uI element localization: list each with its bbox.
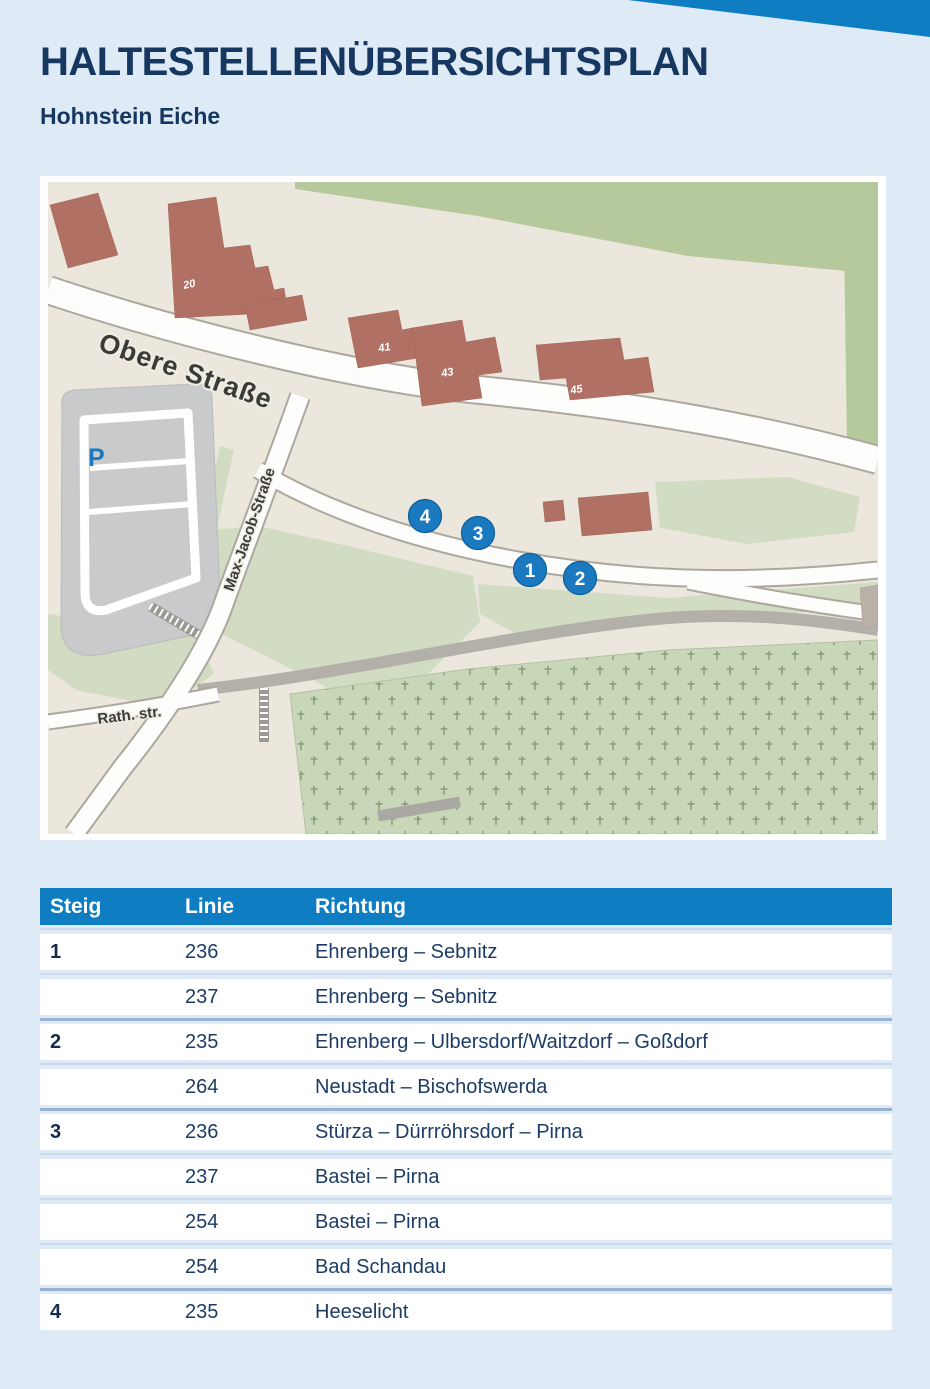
cell-richtung: Ehrenberg – Sebnitz: [315, 986, 892, 1009]
building-label: 41: [376, 341, 391, 355]
cell-linie: 237: [185, 986, 315, 1009]
cell-linie: 236: [185, 1121, 315, 1144]
cell-linie: 254: [185, 1211, 315, 1234]
cell-linie: 237: [185, 1166, 315, 1189]
map-parking-area: [61, 384, 220, 656]
stop-number: 3: [473, 524, 484, 545]
header-cell-linie: Linie: [185, 895, 315, 919]
table-row: 2 235 Ehrenberg – Ulbersdorf/Waitzdorf –…: [40, 1024, 892, 1060]
cell-linie: 254: [185, 1256, 315, 1279]
stop-number: 4: [420, 507, 431, 528]
header-cell-steig: Steig: [40, 895, 185, 919]
cell-richtung: Ehrenberg – Ulbersdorf/Waitzdorf – Goßdo…: [315, 1031, 892, 1054]
row-separator: [40, 1240, 892, 1249]
stop-marker-3: 3: [462, 517, 495, 550]
map-image: 20 41 43 45 Obere Straße Max-Jacob-Straß…: [48, 182, 878, 834]
table-row: 3 236 Stürza – Dürrröhrsdorf – Pirna: [40, 1114, 892, 1150]
table-row: 4 235 Heeselicht: [40, 1294, 892, 1330]
header-cell-richtung: Richtung: [315, 895, 892, 919]
departures-table: Steig Linie Richtung 1 236 Ehrenberg – S…: [40, 888, 892, 1330]
stop-number: 1: [525, 561, 536, 582]
cell-steig: 1: [40, 941, 185, 964]
table-row: 254 Bastei – Pirna: [40, 1204, 892, 1240]
table-row: 237 Bastei – Pirna: [40, 1159, 892, 1195]
stop-overview-map: 20 41 43 45 Obere Straße Max-Jacob-Straß…: [40, 176, 886, 840]
cell-steig: 3: [40, 1121, 185, 1144]
parking-label: P: [88, 444, 105, 472]
stop-number: 2: [575, 569, 586, 590]
table-row: 264 Neustadt – Bischofswerda: [40, 1069, 892, 1105]
cell-richtung: Neustadt – Bischofswerda: [315, 1076, 892, 1099]
stop-marker-2: 2: [564, 562, 597, 595]
cell-richtung: Ehrenberg – Sebnitz: [315, 941, 892, 964]
row-separator: [40, 1015, 892, 1024]
cell-linie: 236: [185, 941, 315, 964]
cell-richtung: Bad Schandau: [315, 1256, 892, 1279]
cell-richtung: Bastei – Pirna: [315, 1166, 892, 1189]
cell-steig: 2: [40, 1031, 185, 1054]
cell-richtung: Stürza – Dürrröhrsdorf – Pirna: [315, 1121, 892, 1144]
cell-linie: 264: [185, 1076, 315, 1099]
row-separator: [40, 1285, 892, 1294]
row-separator: [40, 1105, 892, 1114]
map-green-area: [844, 234, 878, 446]
table-row: 1 236 Ehrenberg – Sebnitz: [40, 934, 892, 970]
table-row: 237 Ehrenberg – Sebnitz: [40, 979, 892, 1015]
page-title: HALTESTELLENÜBERSICHTSPLAN: [40, 40, 708, 85]
cell-richtung: Heeselicht: [315, 1301, 892, 1324]
row-separator: [40, 925, 892, 934]
building-label: 43: [439, 366, 454, 380]
cell-linie: 235: [185, 1301, 315, 1324]
row-separator: [40, 1195, 892, 1204]
cell-linie: 235: [185, 1031, 315, 1054]
stop-marker-4: 4: [409, 500, 442, 533]
row-separator: [40, 970, 892, 979]
page-subtitle: Hohnstein Eiche: [40, 103, 220, 130]
table-row: 254 Bad Schandau: [40, 1249, 892, 1285]
corner-wedge-decoration: [628, 0, 930, 37]
cell-richtung: Bastei – Pirna: [315, 1211, 892, 1234]
row-separator: [40, 1060, 892, 1069]
row-separator: [40, 1150, 892, 1159]
table-header: Steig Linie Richtung: [40, 888, 892, 925]
stop-marker-1: 1: [514, 554, 547, 587]
cell-steig: 4: [40, 1301, 185, 1324]
